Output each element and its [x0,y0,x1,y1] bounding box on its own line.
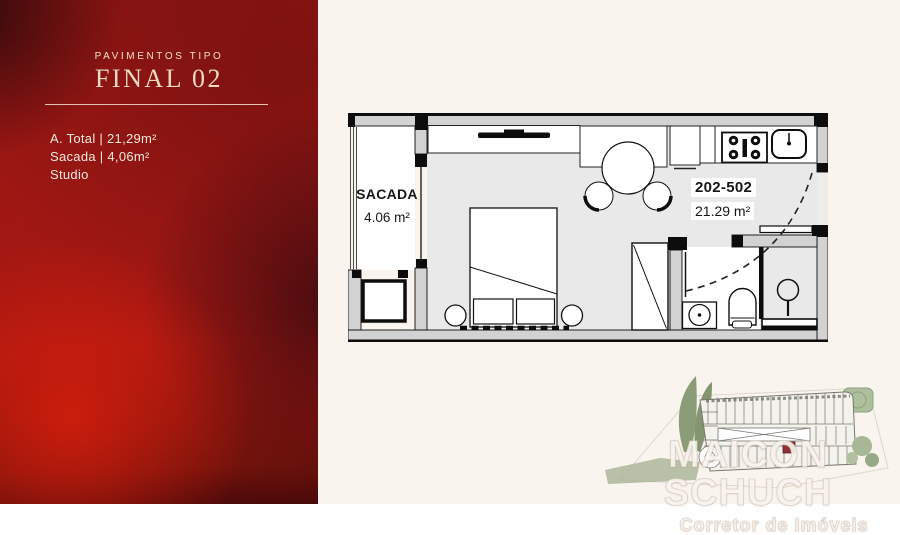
landscape-strip [605,458,700,484]
pillow [474,299,514,324]
toilet [729,289,756,329]
wall-niche [760,226,812,233]
corridor [718,428,810,441]
panel-title: FINAL 02 [0,64,318,94]
ac-unit [363,281,405,321]
spec-unit-type: Studio [50,166,157,184]
leaf [679,376,697,452]
left-info-panel: PAVIMENTOS TIPO FINAL 02 A. Total | 21,2… [0,0,318,504]
panel-eyebrow: PAVIMENTOS TIPO [0,51,318,62]
stair-ramp [699,446,721,468]
unit-range-label: 202-502 [691,178,756,197]
nightstand [445,305,466,326]
watermark-subtitle: Corretor de Imóveis [588,516,900,534]
spec-balcony-area: Sacada | 4,06m² [50,148,157,166]
nightstand [562,305,583,326]
washbasin [683,302,717,329]
balcony-label: SACADA [350,186,424,202]
pillow [517,299,555,324]
building-key-plan [600,368,900,504]
cooktop [722,133,767,163]
spec-total-area: A. Total | 21,29m² [50,130,157,148]
highlighted-unit [783,442,795,453]
double-bed [470,208,557,327]
page: PAVIMENTOS TIPO FINAL 02 A. Total | 21,2… [0,0,900,504]
wardrobe [632,243,668,330]
balcony-area-label: 4.06 m² [350,210,424,225]
shower-head [778,280,799,301]
panel-divider [45,104,268,105]
unit-specs: A. Total | 21,29m² Sacada | 4,06m² Studi… [50,130,157,184]
unit-area-label: 21.29 m² [691,202,754,220]
floor-plan-svg [348,113,828,342]
dining-table [602,142,654,194]
